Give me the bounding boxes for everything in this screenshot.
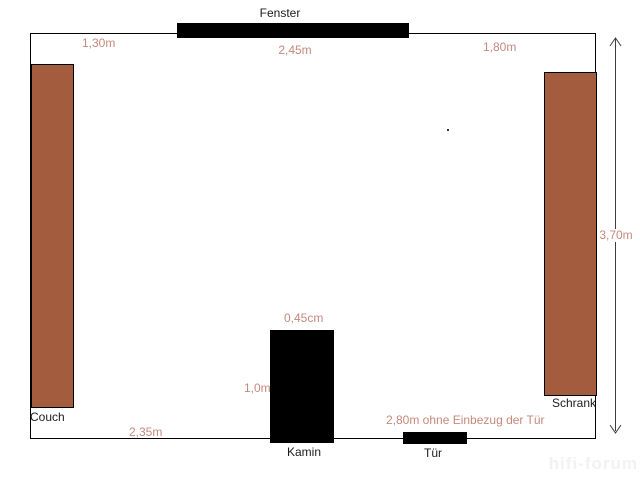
door-label: Tür xyxy=(424,447,442,460)
kamin-rect xyxy=(270,330,334,443)
measurement-kamin-depth: 1,0m xyxy=(244,382,271,395)
schrank-rect xyxy=(544,72,597,396)
couch-label: Couch xyxy=(30,411,65,424)
measurement-wall-left-of-window: 1,30m xyxy=(82,37,115,50)
watermark-text: hifi-forum xyxy=(549,454,638,474)
window-bar xyxy=(177,23,409,38)
measurement-wall-left-of-kamin: 2,35m xyxy=(129,426,162,439)
measurement-window-width: 2,45m xyxy=(270,44,320,57)
door-bar xyxy=(403,432,467,444)
measurement-kamin-width: 0,45cm xyxy=(284,312,323,325)
schrank-label: Schrank xyxy=(552,397,596,410)
measurement-door-note: 2,80m ohne Einbezug der Tür xyxy=(386,414,545,427)
measurement-wall-right-of-window: 1,80m xyxy=(483,41,516,54)
measurement-room-depth: 3,70m xyxy=(598,229,634,242)
kamin-label: Kamin xyxy=(287,446,321,459)
window-label: Fenster xyxy=(240,7,320,20)
stray-dot xyxy=(447,129,449,131)
room-floorplan: Fenster 1,30m 2,45m 1,80m Couch Schrank … xyxy=(0,0,640,480)
couch-rect xyxy=(31,64,74,408)
